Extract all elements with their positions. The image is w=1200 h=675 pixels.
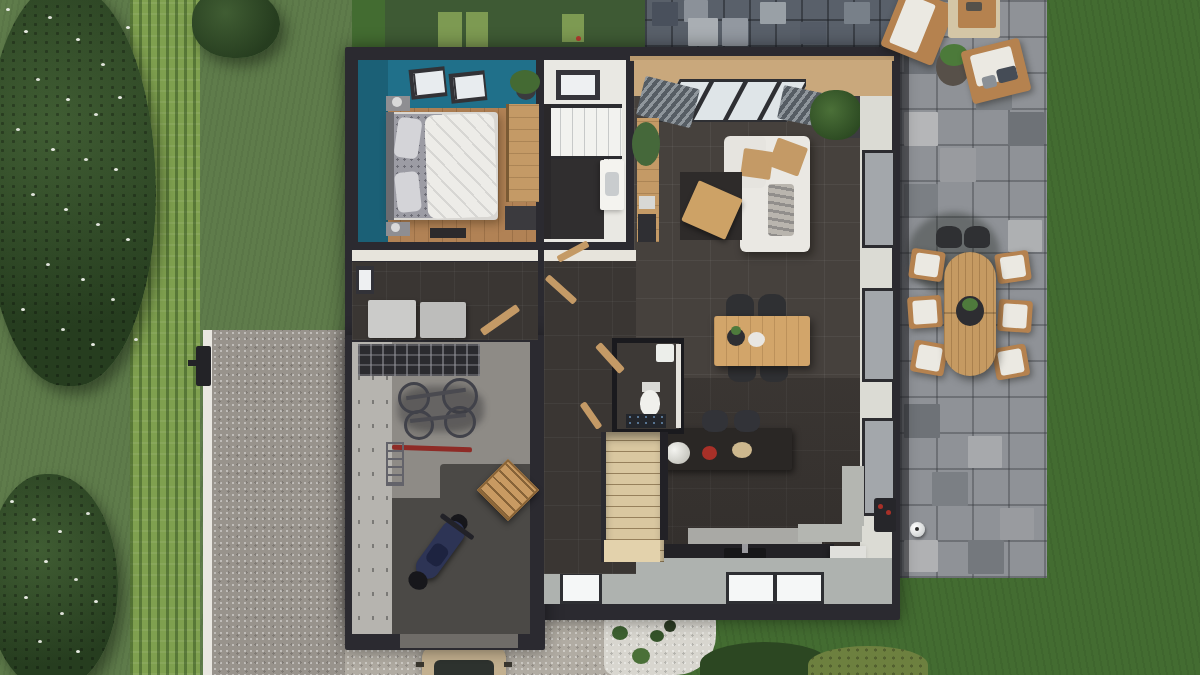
doormat-1 xyxy=(688,18,718,46)
outdoor-chair xyxy=(908,248,946,282)
wc-rug xyxy=(626,414,666,428)
wc-basin xyxy=(656,344,674,362)
terrace-tile xyxy=(904,184,938,216)
terrace-tile xyxy=(968,540,1004,574)
rockery-plant xyxy=(612,626,628,640)
outdoor-chair xyxy=(907,295,943,329)
bed-foot-rug xyxy=(430,228,466,238)
lawn-shadow-top xyxy=(385,0,647,50)
firepit-items xyxy=(966,2,982,11)
bbq-grill xyxy=(874,498,896,532)
table-centerpiece-plant xyxy=(731,326,741,335)
outdoor-chair xyxy=(997,299,1033,333)
kitchen-faucet xyxy=(742,544,748,553)
floorplan-render xyxy=(0,0,1200,675)
rockery-plant xyxy=(650,630,664,642)
garage-door-threshold xyxy=(400,634,518,648)
bbq-knob xyxy=(878,504,883,509)
island-flower-bouquet xyxy=(666,442,690,464)
south-window-2 xyxy=(726,572,776,604)
mailbox-arm xyxy=(188,360,198,366)
terrace-tile xyxy=(904,404,940,438)
bedroom-plant-foliage xyxy=(510,70,540,94)
car-mirror-left xyxy=(416,662,424,667)
chair-cushion xyxy=(997,348,1025,376)
bathroom-dark-floor xyxy=(548,159,604,239)
bicycle-wheel xyxy=(444,406,476,438)
grass-paver-2 xyxy=(466,12,488,50)
bedroom-accent-wall-left xyxy=(358,60,388,242)
lounge-pillow-gray xyxy=(981,74,997,89)
staircase-wall-right xyxy=(660,432,668,540)
car-mirror-right xyxy=(504,662,512,667)
chair-cushion xyxy=(912,299,938,325)
sofa-throw xyxy=(768,184,794,236)
car-windshield xyxy=(434,660,494,675)
garage-storage-rack xyxy=(358,344,480,376)
washer xyxy=(368,300,416,338)
window-bench-horizontal xyxy=(798,524,862,542)
terrace-tile xyxy=(1000,508,1034,540)
ladder xyxy=(386,442,404,486)
outdoor-chair xyxy=(994,250,1032,284)
south-window-1 xyxy=(560,572,602,604)
bed-duvet-white xyxy=(424,113,498,219)
red-flower xyxy=(576,36,581,41)
bay-window-mullion xyxy=(723,82,748,120)
bedroom-desk xyxy=(505,206,536,230)
chair-cushion xyxy=(914,252,941,277)
island-red-bowl xyxy=(702,446,717,460)
terrace-tile xyxy=(1008,220,1042,252)
window-bench-vertical xyxy=(842,466,864,526)
utility-lintel xyxy=(352,250,538,261)
wc-white-wall xyxy=(676,344,681,428)
paving-tile xyxy=(760,2,786,24)
bicycle-wheel xyxy=(404,410,434,440)
nightstand-lamp-bottom xyxy=(391,223,400,232)
paving-tile xyxy=(844,2,870,24)
outdoor-chair xyxy=(991,343,1030,380)
garage-wall-panels xyxy=(352,342,392,634)
tree-blossoms-bottom xyxy=(10,500,14,503)
bed-pillow-2 xyxy=(394,171,422,213)
sideboard-decor xyxy=(639,196,655,209)
terrace-tile xyxy=(1008,112,1044,146)
doormat-2 xyxy=(722,18,748,46)
tree-canopy-top xyxy=(0,0,156,386)
shower-glass-top xyxy=(548,104,622,108)
chair-cushion xyxy=(1002,303,1028,329)
east-window-2 xyxy=(862,288,896,382)
outdoor-chair-head xyxy=(964,226,990,248)
table-dish xyxy=(748,332,765,347)
house-shadow-east xyxy=(900,0,909,578)
outdoor-chair-head xyxy=(936,226,962,248)
south-window-3 xyxy=(774,572,824,604)
soccer-ball-patch xyxy=(915,527,919,531)
chair-cushion xyxy=(1000,254,1027,279)
terrace-tile xyxy=(932,472,968,506)
roof-window-2-glass xyxy=(453,74,485,99)
island-gold-dish xyxy=(732,442,752,458)
tree-texture xyxy=(0,0,156,386)
east-window-1 xyxy=(862,150,896,248)
terrace-tile xyxy=(904,540,938,572)
shower xyxy=(548,104,622,160)
terrace-tile xyxy=(904,112,938,146)
roof-window-1-glass xyxy=(413,70,445,95)
utility-window-glass xyxy=(359,270,371,290)
chair-cushion xyxy=(915,344,943,372)
grass-paver-1 xyxy=(438,12,462,50)
bed-headboard xyxy=(386,112,394,220)
dryer xyxy=(420,302,466,338)
wardrobe xyxy=(506,104,539,202)
living-corner-plant xyxy=(810,90,862,140)
bbq-knob xyxy=(886,510,891,515)
lounge-pillow-dark xyxy=(996,65,1019,83)
sideboard-vase xyxy=(638,214,656,242)
sideboard-plant xyxy=(632,122,660,166)
staircase-landing xyxy=(604,540,660,562)
rockery-grass-tuft xyxy=(664,620,676,632)
driveway xyxy=(212,330,345,675)
bar-stool xyxy=(702,410,728,432)
nightstand-lamp-top xyxy=(392,97,402,107)
terrace-tile xyxy=(968,436,1002,468)
mailbox-post xyxy=(196,346,211,386)
bathroom-window-glass xyxy=(561,75,595,95)
outdoor-chair xyxy=(909,339,948,376)
outdoor-table-plant xyxy=(962,298,978,311)
wc-toilet-bowl xyxy=(640,390,660,416)
lounge-cushion xyxy=(889,0,936,53)
bathroom-dark-wall-strip xyxy=(544,104,551,239)
vanity-basin xyxy=(605,172,619,196)
terrace-tile xyxy=(940,148,976,182)
paving-tile xyxy=(800,22,826,44)
rockery-plant xyxy=(632,648,650,664)
bar-stool xyxy=(734,410,760,432)
paving-tile xyxy=(652,2,678,26)
tree-blossoms-top xyxy=(6,8,10,11)
